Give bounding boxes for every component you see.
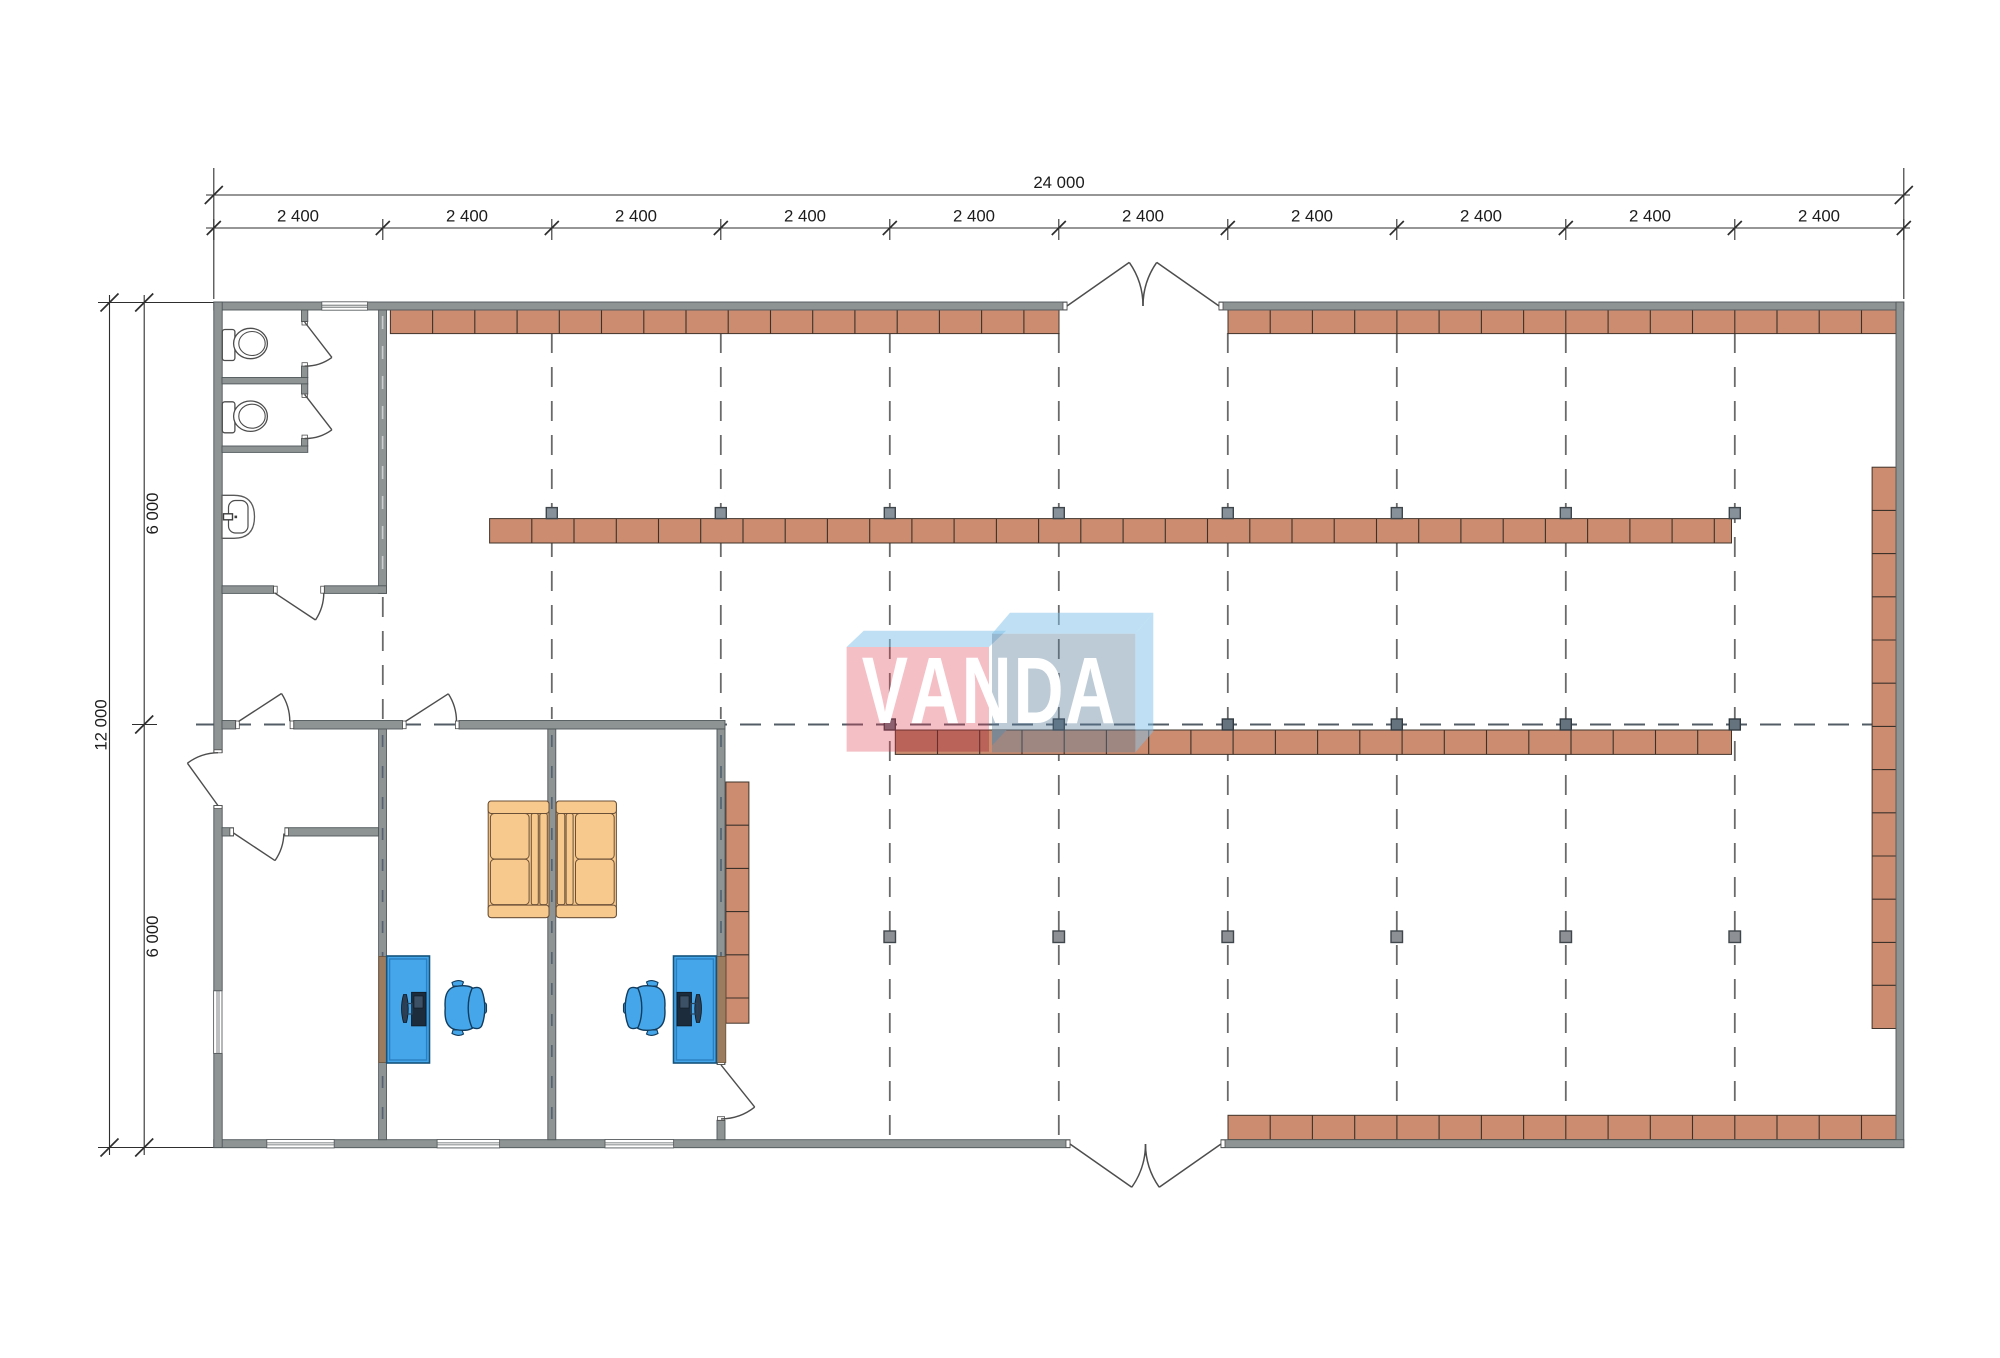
- svg-text:6 000: 6 000: [143, 916, 162, 958]
- svg-text:2 400: 2 400: [953, 207, 995, 226]
- svg-text:2 400: 2 400: [1122, 207, 1164, 226]
- svg-text:2 400: 2 400: [277, 207, 319, 226]
- svg-text:2 400: 2 400: [1460, 207, 1502, 226]
- svg-text:24 000: 24 000: [1033, 173, 1084, 192]
- svg-text:2 400: 2 400: [1291, 207, 1333, 226]
- svg-text:6 000: 6 000: [143, 493, 162, 535]
- svg-text:12 000: 12 000: [92, 699, 111, 750]
- svg-text:2 400: 2 400: [615, 207, 657, 226]
- svg-text:2 400: 2 400: [1629, 207, 1671, 226]
- svg-text:2 400: 2 400: [784, 207, 826, 226]
- svg-text:2 400: 2 400: [446, 207, 488, 226]
- svg-text:2 400: 2 400: [1798, 207, 1840, 226]
- svg-text:VANDA: VANDA: [862, 637, 1117, 743]
